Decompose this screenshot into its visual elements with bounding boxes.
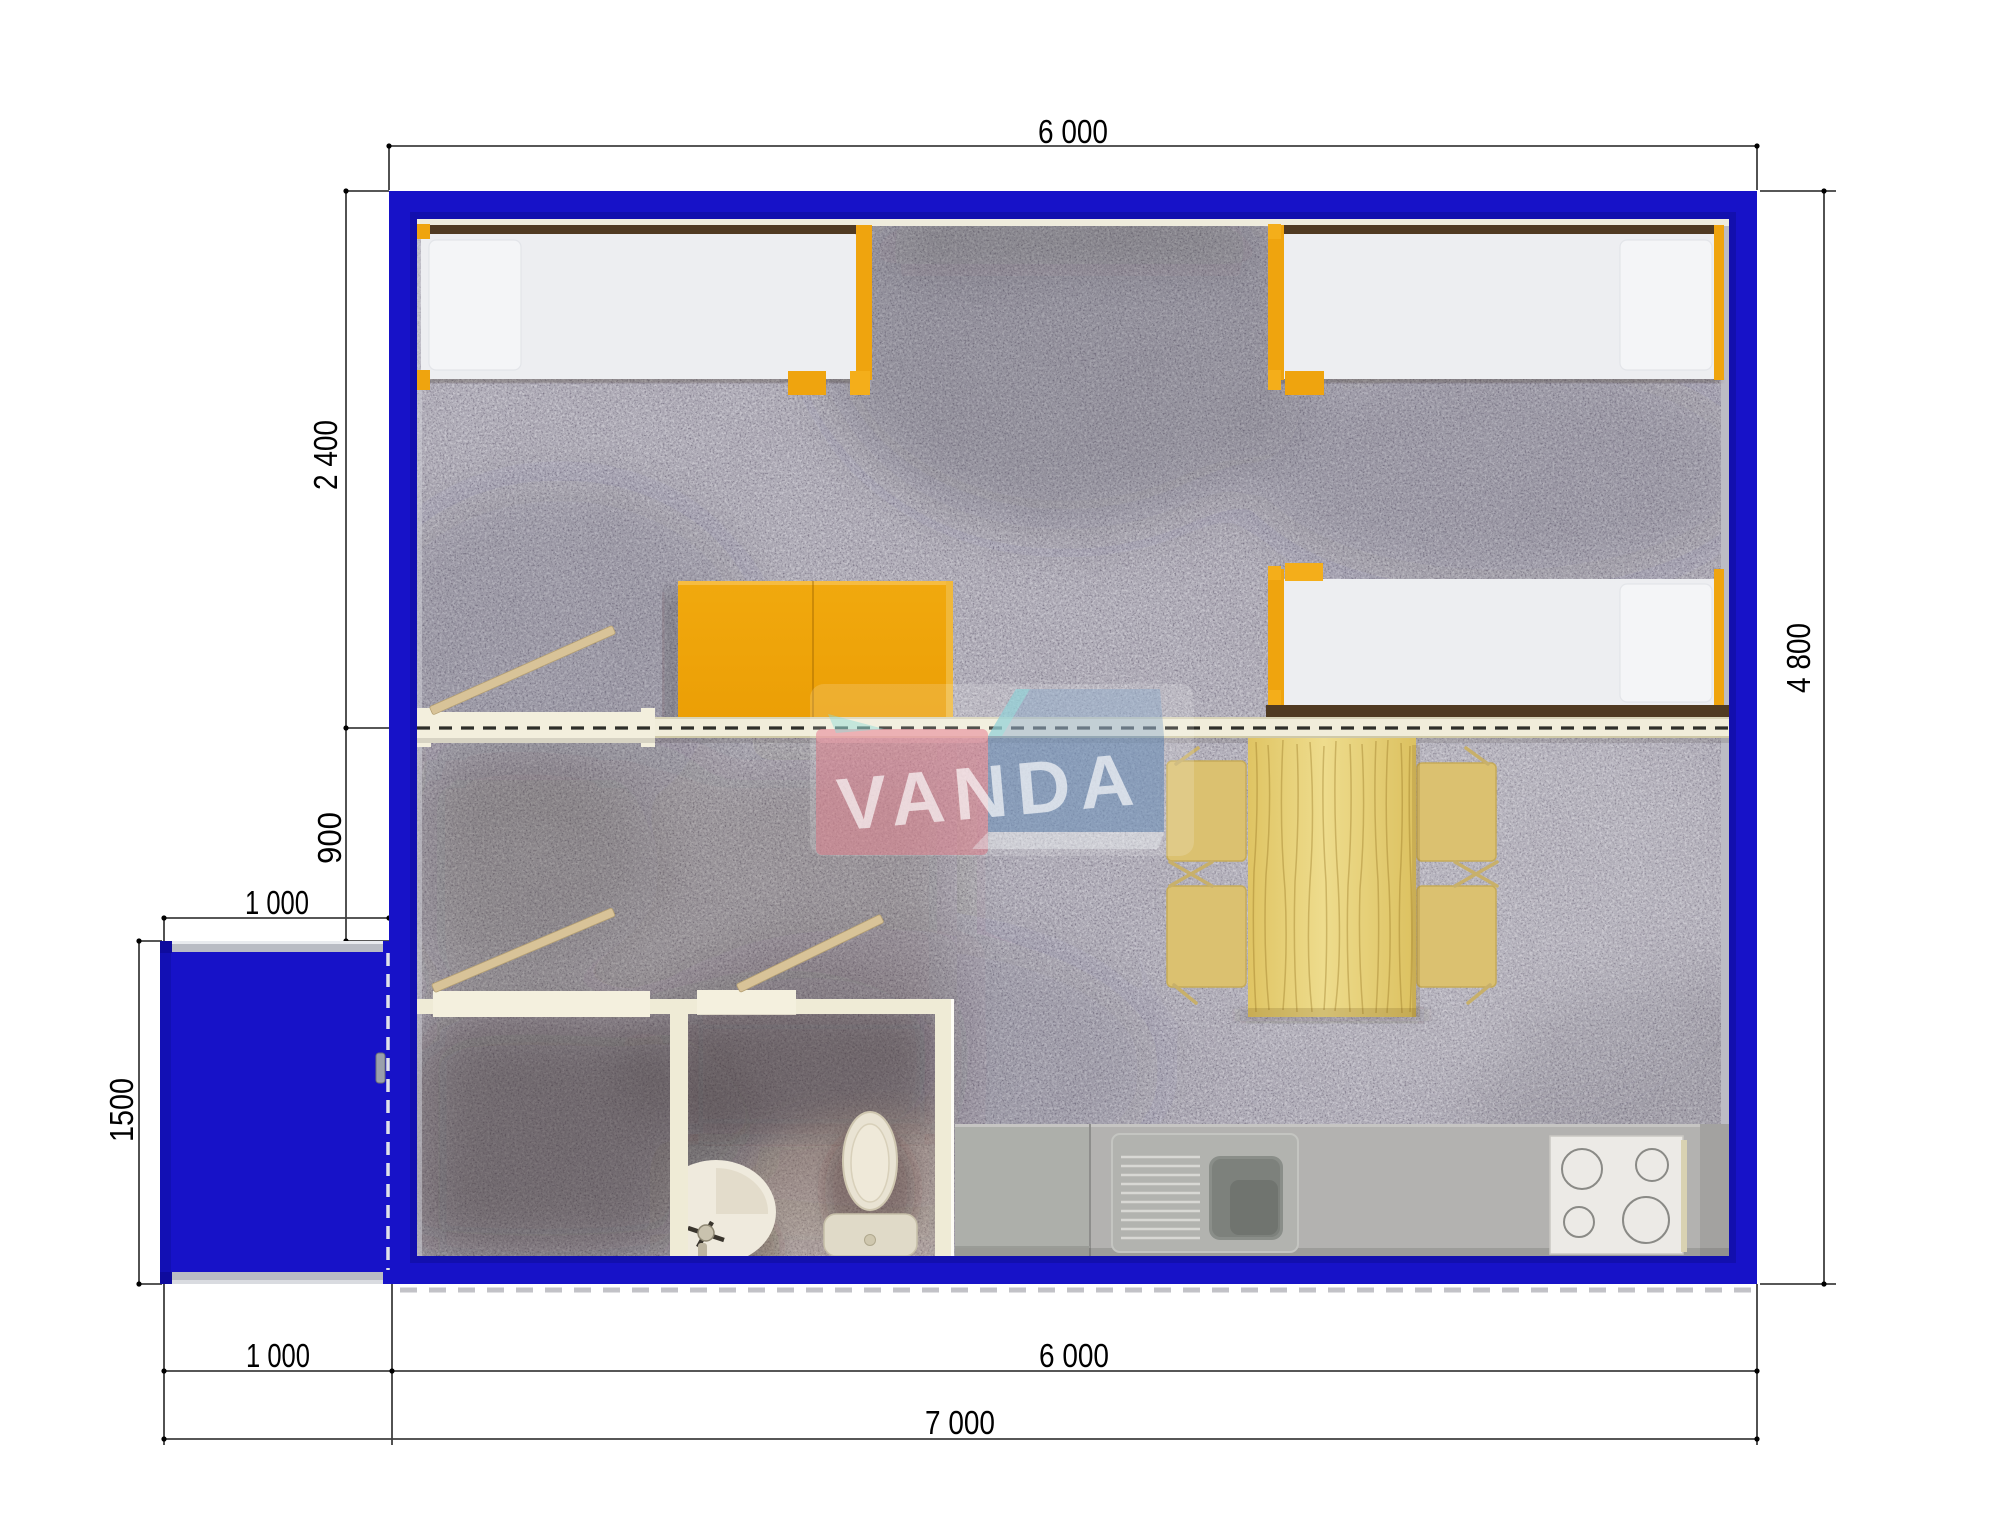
- svg-text:1500: 1500: [103, 1078, 140, 1142]
- svg-text:900: 900: [311, 812, 348, 864]
- svg-text:7 000: 7 000: [925, 1404, 995, 1441]
- svg-text:6 000: 6 000: [1038, 113, 1108, 150]
- svg-text:2 400: 2 400: [307, 420, 344, 490]
- svg-text:6 000: 6 000: [1039, 1337, 1109, 1374]
- svg-text:4 800: 4 800: [1780, 623, 1817, 693]
- svg-text:1 000: 1 000: [245, 884, 309, 921]
- svg-text:1 000: 1 000: [246, 1337, 310, 1374]
